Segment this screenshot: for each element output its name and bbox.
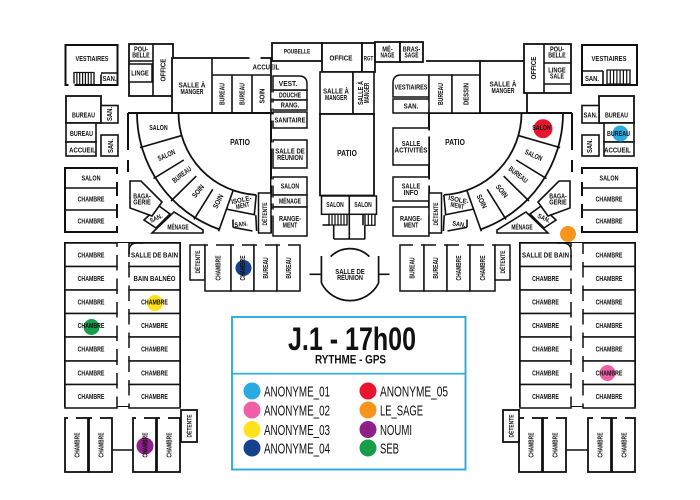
svg-text:RANG.: RANG. — [281, 101, 299, 110]
svg-text:VESTIAIRES: VESTIAIRES — [76, 54, 109, 63]
svg-text:ACCUEIL: ACCUEIL — [253, 63, 280, 72]
svg-text:CHAMBRE: CHAMBRE — [621, 432, 629, 457]
svg-text:DOUCHE: DOUCHE — [279, 91, 301, 100]
svg-text:SALON: SALON — [81, 174, 100, 183]
svg-text:BUREAU: BUREAU — [238, 83, 247, 105]
svg-text:GERIE: GERIE — [549, 200, 567, 207]
svg-text:MÉNAGE: MÉNAGE — [167, 223, 188, 232]
svg-text:DÉTENTE: DÉTENTE — [506, 414, 515, 438]
svg-text:CHAMBRE: CHAMBRE — [78, 345, 105, 354]
svg-text:CHAMBRE: CHAMBRE — [141, 392, 168, 401]
svg-text:CHAMBRE: CHAMBRE — [596, 321, 623, 330]
svg-text:NAGE: NAGE — [381, 53, 395, 60]
svg-text:BAIN BALNÉO: BAIN BALNÉO — [134, 274, 176, 283]
svg-text:CHAMBRE: CHAMBRE — [532, 368, 559, 377]
svg-text:CHAMBRE: CHAMBRE — [78, 195, 105, 204]
svg-text:PATIO: PATIO — [445, 138, 465, 147]
svg-text:VESTIAIRES: VESTIAIRES — [592, 54, 627, 63]
svg-text:BUREAU: BUREAU — [72, 111, 95, 120]
svg-text:MANGER: MANGER — [492, 86, 515, 95]
svg-text:SALON: SALON — [326, 202, 344, 209]
svg-text:BUREAU: BUREAU — [70, 129, 93, 138]
svg-text:CHAMBRE: CHAMBRE — [78, 217, 105, 226]
svg-text:CHAMBRE: CHAMBRE — [141, 368, 168, 377]
svg-text:MENT: MENT — [404, 220, 419, 229]
svg-text:CHAMBRE: CHAMBRE — [78, 368, 105, 377]
svg-text:CHAMBRE: CHAMBRE — [215, 255, 223, 280]
svg-text:CHAMBRE: CHAMBRE — [141, 321, 168, 330]
svg-text:SALON: SALON — [281, 182, 299, 191]
svg-text:ACTIVITÉS: ACTIVITÉS — [395, 145, 428, 154]
svg-text:SALON: SALON — [149, 123, 167, 132]
svg-text:VESTIAIRES: VESTIAIRES — [395, 84, 428, 92]
svg-text:RGT: RGT — [364, 55, 374, 62]
svg-text:RÉUNION: RÉUNION — [277, 153, 303, 162]
svg-text:CHAMBRE: CHAMBRE — [532, 297, 559, 306]
svg-text:ANONYME_02: ANONYME_02 — [264, 402, 330, 419]
svg-text:BUREAU: BUREAU — [605, 111, 628, 120]
svg-text:CHAMBRE: CHAMBRE — [532, 274, 559, 283]
svg-text:CHAMBRE: CHAMBRE — [552, 432, 560, 457]
svg-text:DÉTENTE: DÉTENTE — [184, 414, 193, 438]
svg-text:SALE: SALE — [550, 74, 564, 81]
svg-text:ANONYME_05: ANONYME_05 — [380, 383, 448, 400]
svg-text:SEB: SEB — [380, 440, 399, 457]
svg-text:SAN.: SAN. — [404, 102, 419, 111]
svg-text:CHAMBRE: CHAMBRE — [528, 432, 536, 457]
svg-text:SAN.: SAN. — [107, 107, 114, 121]
svg-text:BELLE: BELLE — [132, 53, 150, 60]
svg-text:MÉNAGE: MÉNAGE — [511, 223, 532, 232]
svg-text:DESSIN: DESSIN — [462, 83, 471, 105]
svg-text:BELLE: BELLE — [548, 53, 566, 60]
svg-text:ACCUEIL: ACCUEIL — [604, 146, 631, 155]
svg-text:CHAMBRE: CHAMBRE — [98, 432, 106, 457]
svg-text:INFO: INFO — [404, 188, 419, 197]
svg-text:BUREAU: BUREAU — [432, 257, 440, 278]
svg-text:CHAMBRE: CHAMBRE — [596, 217, 623, 226]
svg-text:VEST.: VEST. — [279, 79, 297, 88]
svg-text:CHAMBRE: CHAMBRE — [455, 255, 463, 280]
svg-text:CHAMBRE: CHAMBRE — [78, 392, 105, 401]
svg-text:GERIE: GERIE — [133, 200, 151, 207]
svg-text:BUREAU: BUREAU — [262, 257, 270, 278]
svg-text:MENT: MENT — [283, 220, 298, 229]
svg-text:CHAMBRE: CHAMBRE — [239, 255, 247, 280]
svg-text:CHAMBRE: CHAMBRE — [141, 297, 168, 306]
svg-text:DÉTENTE: DÉTENTE — [431, 202, 440, 226]
svg-text:CHAMBRE: CHAMBRE — [142, 432, 150, 457]
svg-text:MANGER: MANGER — [364, 83, 371, 104]
svg-text:RÉUNION: RÉUNION — [337, 273, 363, 282]
svg-text:ANONYME_01: ANONYME_01 — [264, 383, 330, 400]
svg-text:CHAMBRE: CHAMBRE — [596, 297, 623, 306]
svg-text:CHAMBRE: CHAMBRE — [479, 255, 487, 280]
svg-text:CHAMBRE: CHAMBRE — [596, 368, 623, 377]
svg-text:OFFICE: OFFICE — [529, 57, 538, 80]
svg-text:DÉTENTE: DÉTENTE — [498, 250, 507, 274]
svg-text:SOIN: SOIN — [258, 89, 267, 104]
svg-text:SAN.: SAN. — [585, 76, 599, 83]
svg-text:SAGE: SAGE — [405, 53, 419, 60]
svg-text:LINGE: LINGE — [131, 71, 149, 78]
svg-text:SALON: SALON — [354, 202, 372, 209]
svg-text:CHAMBRE: CHAMBRE — [596, 250, 623, 259]
svg-text:BUREAU: BUREAU — [436, 83, 445, 105]
svg-text:MANGER: MANGER — [325, 93, 348, 102]
svg-text:OFFICE: OFFICE — [330, 54, 353, 63]
svg-text:ANONYME_03: ANONYME_03 — [264, 422, 330, 439]
svg-text:CHAMBRE: CHAMBRE — [532, 321, 559, 330]
svg-text:POUBELLE: POUBELLE — [284, 48, 311, 55]
svg-text:MÉNAGE: MÉNAGE — [279, 197, 301, 206]
svg-text:CHAMBRE: CHAMBRE — [596, 392, 623, 401]
svg-text:SAN.: SAN. — [584, 113, 598, 120]
svg-text:CHAMBRE: CHAMBRE — [74, 432, 82, 457]
svg-text:CHAMBRE: CHAMBRE — [596, 195, 623, 204]
svg-text:PATIO: PATIO — [230, 138, 250, 147]
svg-text:BUREAU: BUREAU — [285, 257, 293, 278]
svg-text:ACCUEIL: ACCUEIL — [69, 146, 96, 155]
svg-text:SAN.: SAN. — [108, 139, 115, 153]
svg-text:BUREAU: BUREAU — [607, 129, 630, 138]
svg-text:NOUMI: NOUMI — [380, 422, 412, 439]
svg-text:MANGER: MANGER — [181, 87, 204, 96]
svg-text:CHAMBRE: CHAMBRE — [597, 432, 605, 457]
svg-text:DÉTENTE: DÉTENTE — [260, 202, 269, 226]
svg-text:SAN.: SAN. — [103, 76, 117, 83]
svg-text:CHAMBRE: CHAMBRE — [78, 297, 105, 306]
svg-text:OFFICE: OFFICE — [159, 59, 168, 82]
svg-text:SANITAIRE: SANITAIRE — [275, 116, 306, 125]
svg-text:SAN.: SAN. — [587, 139, 594, 153]
svg-text:ANONYME_04: ANONYME_04 — [264, 440, 330, 457]
svg-text:CHAMBRE: CHAMBRE — [532, 345, 559, 354]
svg-text:CHAMBRE: CHAMBRE — [78, 321, 105, 330]
svg-text:SALLE DE BAIN: SALLE DE BAIN — [131, 250, 178, 259]
svg-text:PATIO: PATIO — [337, 149, 357, 158]
svg-text:CHAMBRE: CHAMBRE — [596, 345, 623, 354]
svg-text:BUREAU: BUREAU — [218, 83, 227, 105]
svg-text:CHAMBRE: CHAMBRE — [78, 250, 105, 259]
svg-text:CHAMBRE: CHAMBRE — [78, 274, 105, 283]
svg-text:CHAMBRE: CHAMBRE — [596, 274, 623, 283]
svg-text:RYTHME - GPS: RYTHME - GPS — [315, 352, 386, 366]
svg-text:SALON: SALON — [532, 123, 550, 132]
svg-text:CHAMBRE: CHAMBRE — [166, 432, 174, 457]
svg-text:SALON: SALON — [599, 174, 618, 183]
svg-text:SALLE DE BAIN: SALLE DE BAIN — [522, 250, 569, 259]
svg-text:DÉTENTE: DÉTENTE — [193, 250, 202, 274]
svg-text:LE_SAGE: LE_SAGE — [380, 402, 423, 419]
svg-text:CHAMBRE: CHAMBRE — [532, 392, 559, 401]
svg-text:CHAMBRE: CHAMBRE — [141, 345, 168, 354]
svg-text:BUREAU: BUREAU — [409, 257, 417, 278]
